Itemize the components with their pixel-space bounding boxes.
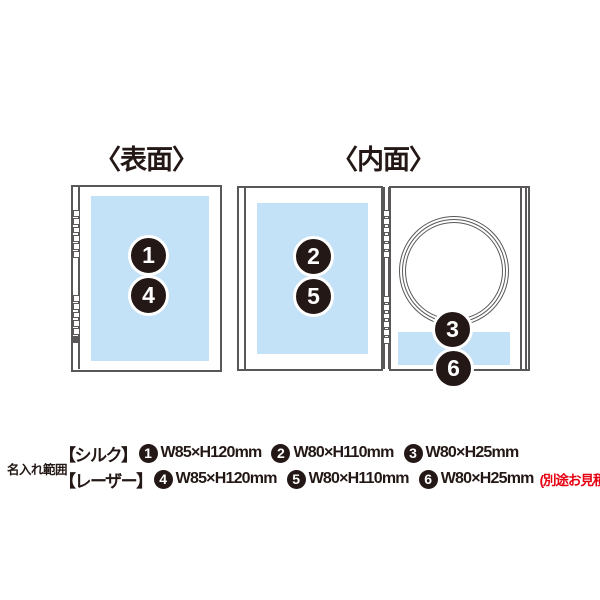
badge-5: 5: [293, 276, 334, 317]
legend-method-laser: 【レーザー】: [59, 467, 152, 492]
legend-size-6: W80×H25mm: [441, 470, 534, 488]
legend-item: 6 W80×H25mm: [419, 470, 534, 489]
legend-item: 2 W80×H110mm: [271, 444, 393, 463]
legend-badge-4: 4: [154, 470, 173, 489]
disc-holder-ring-inner: [405, 222, 503, 320]
legend-badge-1: 1: [139, 444, 158, 463]
legend-size-2: W80×H110mm: [293, 444, 393, 462]
legend-badge-6: 6: [419, 470, 438, 489]
legend-item: 4 W85×H120mm: [154, 470, 277, 489]
legend-item: 1 W85×H120mm: [139, 444, 262, 463]
legend-row-silk: 【シルク】 1 W85×H120mm 2 W80×H110mm 3 W80×H2…: [59, 443, 518, 463]
legend-badge-2: 2: [271, 444, 290, 463]
badge-4: 4: [128, 275, 169, 316]
legend-size-1: W85×H120mm: [161, 444, 262, 462]
front-spine-hinge-top: [73, 210, 80, 258]
inner-left-edge-line: [244, 188, 246, 369]
legend-badge-5: 5: [287, 470, 306, 489]
legend-badge-3: 3: [404, 444, 423, 463]
legend-item: 3 W80×H25mm: [404, 444, 519, 463]
legend-size-4: W85×H120mm: [176, 470, 277, 488]
badge-6: 6: [433, 348, 474, 389]
inner-right-edge-line-2: [525, 188, 527, 369]
legend-size-3: W80×H25mm: [426, 444, 519, 462]
legend-item: 5 W80×H110mm: [287, 470, 409, 489]
separate-quote-note: (別途お見積り): [540, 469, 600, 489]
legend-size-5: W80×H110mm: [309, 470, 409, 488]
imprint-area-spec-diagram: 〈表面〉 〈内面〉 1 4 2 5 3 6 名入れ範囲 【シルク】 1 W85×…: [0, 0, 600, 600]
legend-label: 名入れ範囲: [7, 459, 67, 478]
front-spine-hinge-bottom: [73, 295, 80, 343]
badge-1: 1: [128, 235, 169, 276]
badge-2: 2: [293, 236, 334, 277]
front-side-title: 〈表面〉: [71, 138, 221, 177]
badge-3: 3: [432, 309, 473, 350]
inner-right-edge-line-1: [520, 188, 522, 369]
inner-side-title: 〈内面〉: [237, 138, 529, 177]
legend-row-laser: 【レーザー】 4 W85×H120mm 5 W80×H110mm 6 W80×H…: [59, 469, 600, 489]
legend-method-silk: 【シルク】: [59, 441, 137, 466]
